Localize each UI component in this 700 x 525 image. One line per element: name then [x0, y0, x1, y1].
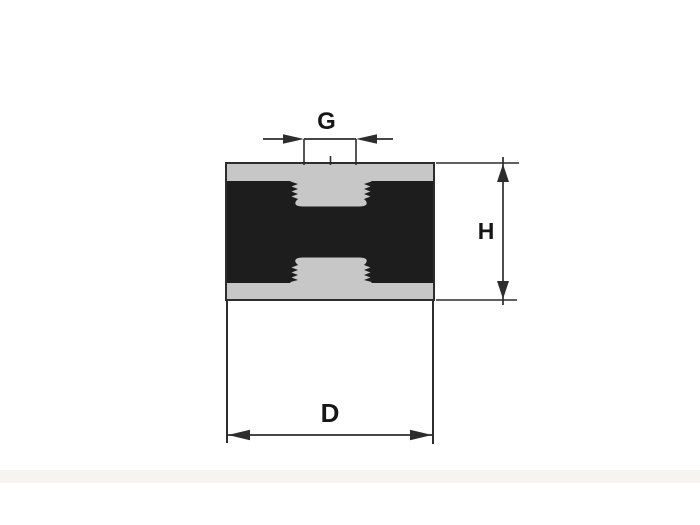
- d-dim-arrowhead-left: [228, 430, 250, 440]
- g-dim-arrowhead-right: [356, 134, 377, 144]
- h-dimension: H: [436, 157, 519, 305]
- top-threaded-hole: [291, 179, 372, 207]
- mount-body: [226, 163, 434, 300]
- d-dim-arrowhead-right: [410, 430, 432, 440]
- h-dim-arrowhead-bottom: [497, 281, 509, 299]
- bottom-threaded-hole: [291, 258, 372, 285]
- diagram-canvas: G H D: [0, 0, 700, 525]
- label-height: H: [478, 218, 495, 244]
- label-outer-diameter: D: [321, 398, 340, 428]
- h-dim-arrowhead-top: [497, 164, 509, 182]
- label-thread-diameter: G: [317, 108, 336, 135]
- mount-cross-section-diagram: G H D: [0, 0, 700, 525]
- bottom-metal-plate: [227, 283, 433, 299]
- d-dimension: D: [227, 299, 433, 444]
- background-shadow-band: [0, 470, 700, 483]
- top-metal-plate: [227, 164, 433, 181]
- g-dim-arrowhead-left: [283, 134, 304, 144]
- g-dimension: G: [263, 108, 393, 165]
